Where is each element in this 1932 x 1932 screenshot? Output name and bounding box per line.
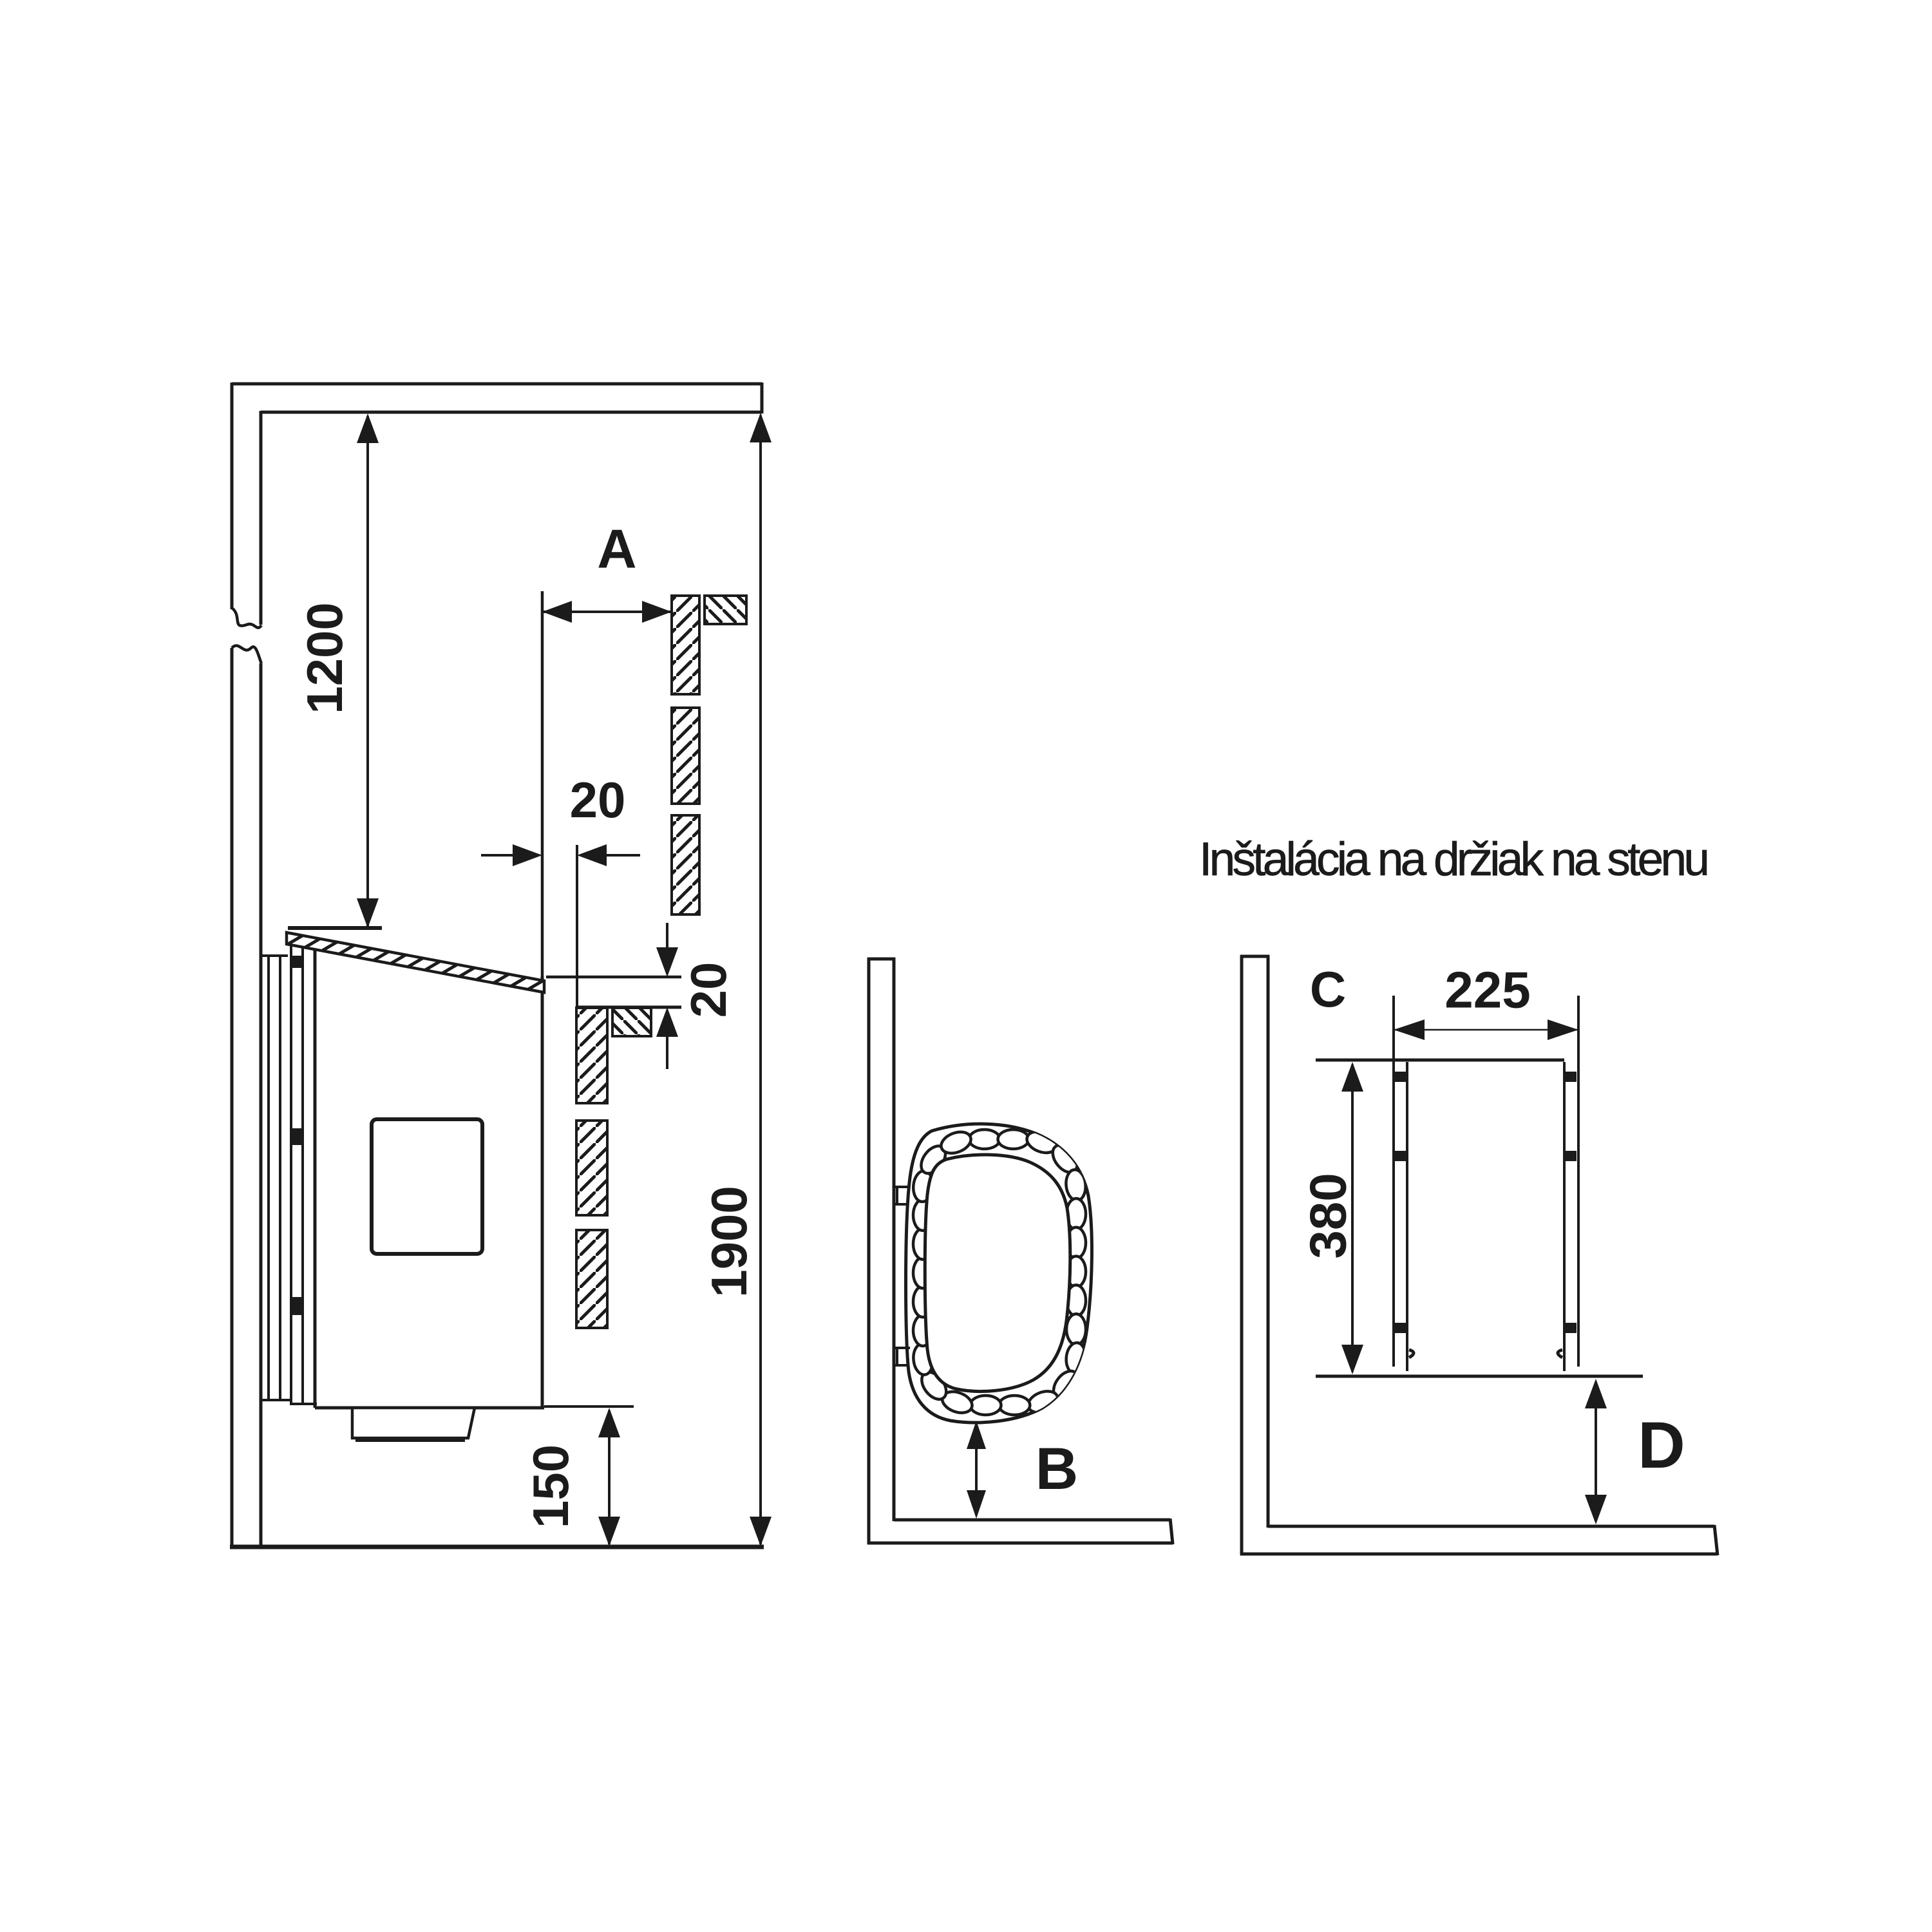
svg-text:C: C	[1310, 961, 1346, 1018]
svg-text:20: 20	[680, 962, 737, 1018]
svg-text:D: D	[1638, 1408, 1685, 1482]
svg-text:Inštalácia na držiak na stenu: Inštalácia na držiak na stenu	[1199, 833, 1710, 885]
svg-text:A: A	[597, 519, 636, 580]
svg-text:1900: 1900	[701, 1186, 757, 1298]
svg-text:380: 380	[1300, 1173, 1357, 1258]
svg-text:1200: 1200	[296, 602, 353, 714]
svg-text:225: 225	[1444, 961, 1530, 1019]
svg-text:20: 20	[570, 772, 626, 828]
svg-text:150: 150	[522, 1444, 579, 1528]
svg-text:B: B	[1036, 1436, 1078, 1502]
